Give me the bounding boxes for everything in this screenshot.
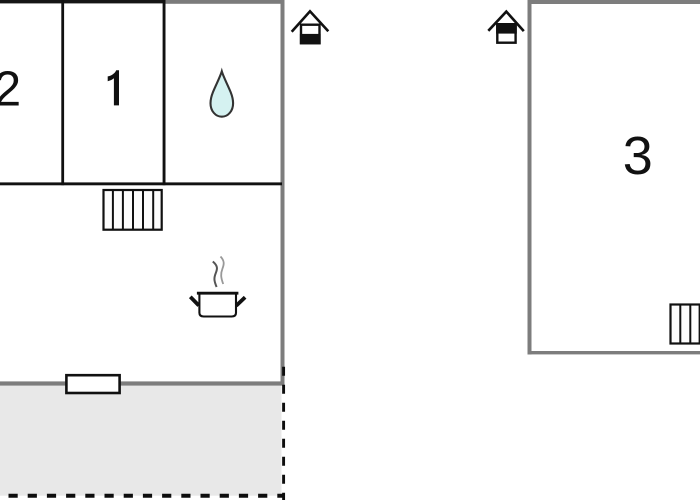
svg-text:2: 2	[0, 62, 21, 116]
svg-text:3: 3	[623, 126, 653, 186]
